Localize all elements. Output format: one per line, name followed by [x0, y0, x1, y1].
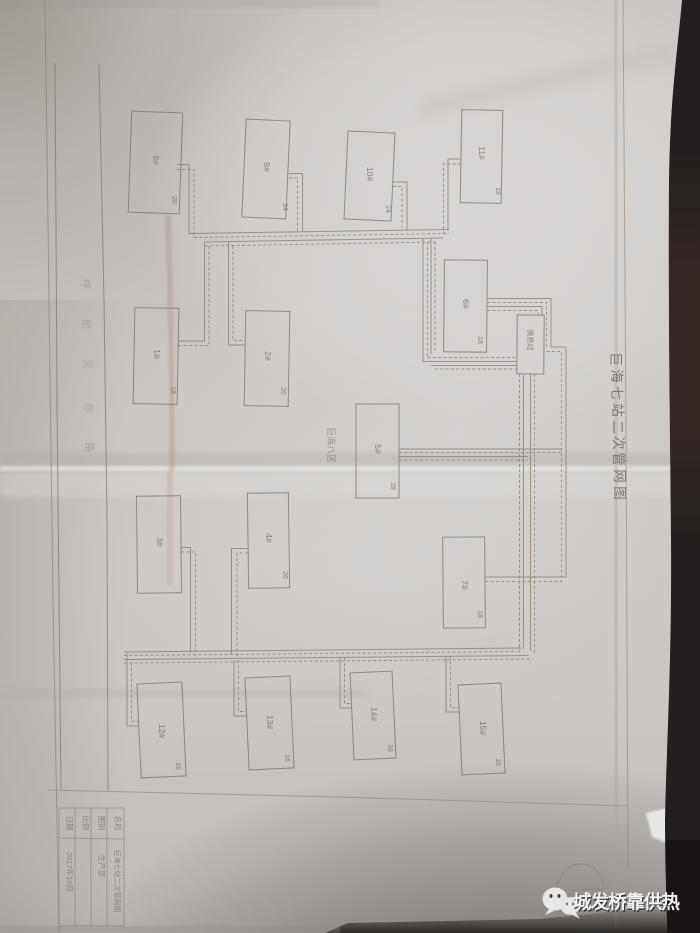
- svg-text:18: 18: [169, 386, 176, 394]
- svg-text:日期: 日期: [65, 816, 74, 831]
- svg-text:11#: 11#: [477, 146, 487, 160]
- svg-text:伦: 伦: [80, 319, 93, 329]
- svg-text:次: 次: [611, 436, 626, 450]
- svg-text:12#: 12#: [157, 724, 167, 738]
- svg-text:24: 24: [281, 203, 288, 211]
- svg-text:16: 16: [494, 758, 501, 766]
- svg-text:名称: 名称: [113, 816, 123, 831]
- svg-text:7#: 7#: [460, 580, 470, 590]
- svg-text:尔: 尔: [82, 403, 95, 413]
- svg-text:网: 网: [612, 469, 627, 483]
- svg-text:28: 28: [389, 482, 396, 490]
- svg-text:巨: 巨: [608, 352, 623, 366]
- svg-text:呼: 呼: [79, 279, 91, 289]
- svg-text:26: 26: [279, 387, 286, 395]
- svg-text:8#: 8#: [151, 155, 161, 165]
- svg-text:2#: 2#: [263, 351, 273, 361]
- svg-text:贝: 贝: [81, 359, 93, 369]
- svg-text:站: 站: [610, 403, 625, 417]
- svg-text:七: 七: [609, 386, 624, 400]
- svg-text:路: 路: [83, 442, 96, 452]
- svg-text:9#: 9#: [262, 162, 272, 172]
- svg-text:18: 18: [494, 187, 501, 195]
- svg-text:24: 24: [384, 205, 391, 213]
- svg-text:生产部: 生产部: [97, 855, 107, 878]
- svg-text:26: 26: [281, 571, 288, 579]
- svg-text:10#: 10#: [365, 167, 375, 181]
- svg-text:3#: 3#: [155, 537, 165, 547]
- svg-text:5#: 5#: [373, 444, 383, 454]
- svg-text:海: 海: [609, 369, 624, 383]
- svg-text:16: 16: [174, 762, 181, 770]
- svg-text:图: 图: [612, 486, 627, 500]
- svg-text:比例: 比例: [81, 816, 91, 831]
- svg-text:6#: 6#: [461, 299, 471, 309]
- svg-text:18: 18: [476, 610, 483, 618]
- svg-text:16: 16: [283, 754, 290, 762]
- svg-text:巨海七站二次管网图: 巨海七站二次管网图: [113, 850, 122, 913]
- svg-text:26: 26: [170, 196, 177, 204]
- svg-text:13#: 13#: [265, 715, 275, 729]
- svg-text:巨海八区: 巨海八区: [326, 427, 337, 463]
- svg-text:18: 18: [476, 336, 483, 344]
- svg-text:城发桥靠供热: 城发桥靠供热: [573, 892, 681, 913]
- svg-text:管: 管: [611, 452, 626, 466]
- svg-text:1#: 1#: [152, 349, 162, 359]
- svg-text:15#: 15#: [478, 721, 488, 735]
- svg-text:2017年10月: 2017年10月: [65, 852, 75, 892]
- svg-text:二: 二: [610, 420, 625, 434]
- svg-text:14#: 14#: [369, 707, 379, 721]
- svg-text:图别: 图别: [97, 816, 106, 831]
- svg-text:4#: 4#: [264, 533, 274, 543]
- svg-text:16: 16: [386, 744, 393, 752]
- svg-text:换热站: 换热站: [526, 330, 535, 351]
